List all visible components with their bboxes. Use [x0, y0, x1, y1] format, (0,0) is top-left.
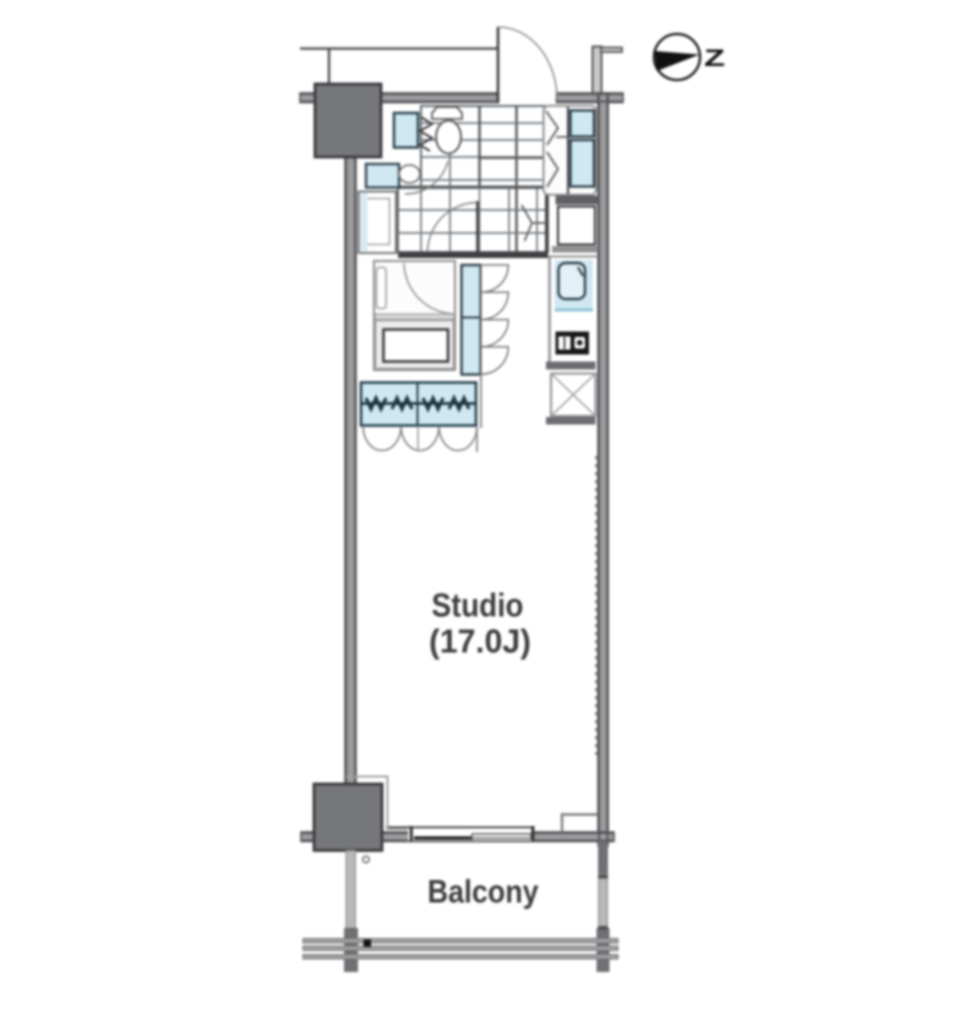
svg-text:Balcony: Balcony	[428, 874, 539, 910]
svg-text:Z: Z	[704, 45, 725, 72]
svg-text:(17.0J): (17.0J)	[429, 623, 531, 660]
svg-text:Studio: Studio	[432, 587, 524, 624]
